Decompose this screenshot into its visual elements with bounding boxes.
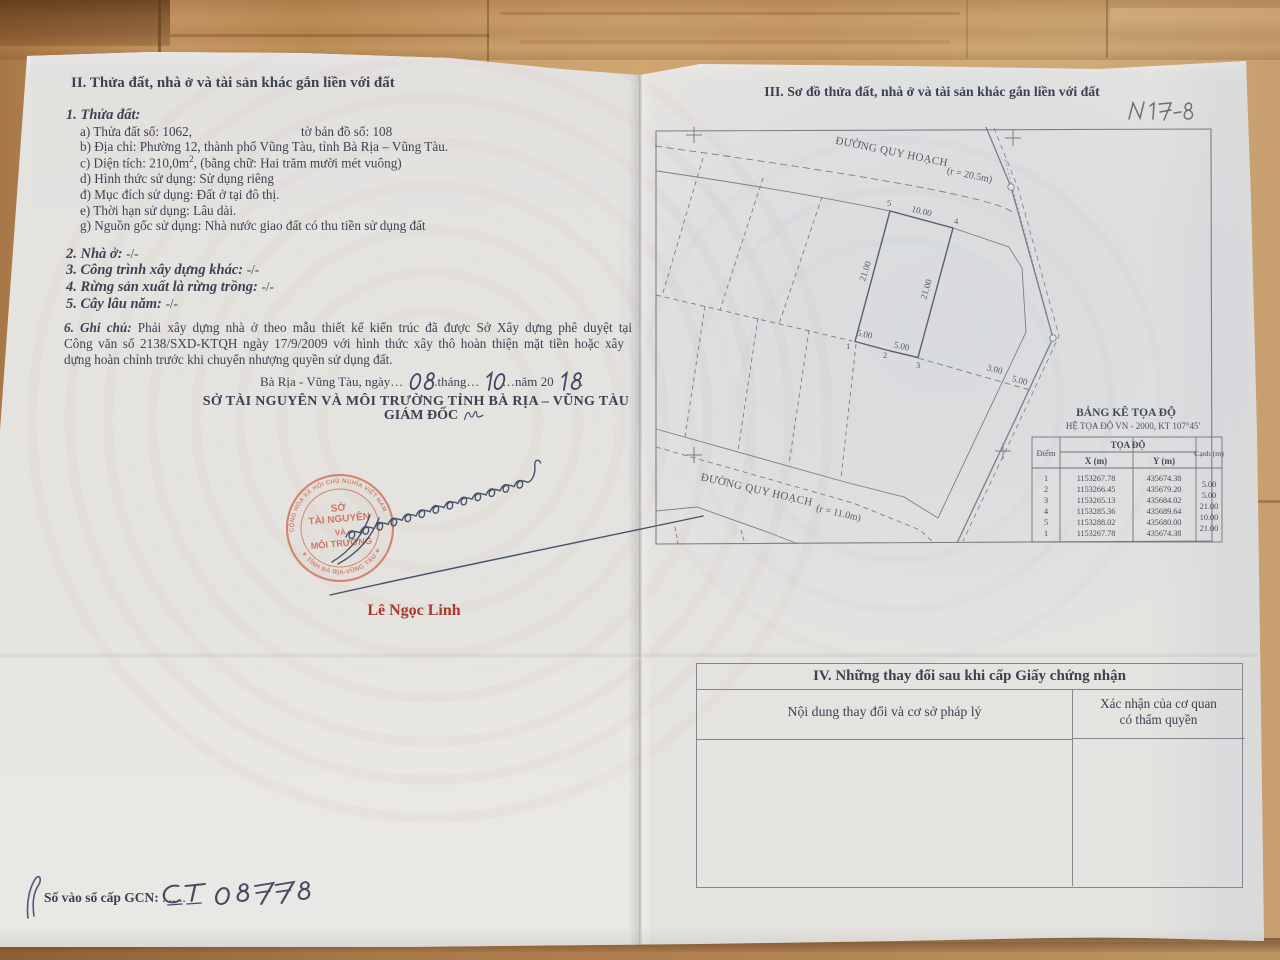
- svg-text:(r = 11.0m): (r = 11.0m): [815, 503, 862, 524]
- svg-text:435680.00: 435680.00: [1147, 518, 1182, 527]
- svg-text:2: 2: [883, 350, 887, 360]
- svg-text:1153267.78: 1153267.78: [1077, 474, 1116, 483]
- svg-text:3: 3: [1044, 496, 1048, 505]
- svg-text:435684.02: 435684.02: [1147, 496, 1182, 505]
- svg-text:ĐƯỜNG QUY HOẠCH: ĐƯỜNG QUY HOẠCH: [700, 471, 814, 508]
- svg-text:21.00: 21.00: [1200, 502, 1218, 511]
- svg-text:Cạnh (m): Cạnh (m): [1194, 449, 1224, 458]
- svg-text:21.00: 21.00: [1200, 524, 1218, 533]
- svg-text:1: 1: [1044, 474, 1048, 483]
- svg-text:4: 4: [954, 216, 959, 226]
- svg-text:Y (m): Y (m): [1153, 456, 1175, 466]
- svg-text:5.00: 5.00: [893, 339, 911, 352]
- svg-text:5.00: 5.00: [1011, 373, 1029, 387]
- svg-text:1: 1: [846, 341, 850, 351]
- svg-text:21.00: 21.00: [918, 278, 933, 301]
- svg-text:3: 3: [916, 360, 920, 370]
- svg-text:BẢNG KÊ TỌA ĐỘ: BẢNG KÊ TỌA ĐỘ: [1076, 405, 1176, 419]
- svg-text:1153267.78: 1153267.78: [1077, 529, 1116, 538]
- svg-text:1153285.36: 1153285.36: [1077, 507, 1116, 516]
- svg-text:1153266.45: 1153266.45: [1077, 485, 1116, 494]
- svg-text:X (m): X (m): [1085, 456, 1107, 466]
- svg-text:1153265.13: 1153265.13: [1077, 496, 1116, 505]
- svg-text:VÀ: VÀ: [334, 527, 346, 537]
- svg-text:5.00: 5.00: [1202, 480, 1216, 489]
- svg-text:4: 4: [1044, 507, 1048, 516]
- svg-text:(r = 20.5m): (r = 20.5m): [946, 166, 993, 186]
- svg-text:1: 1: [1044, 529, 1048, 538]
- svg-text:5.00: 5.00: [856, 327, 874, 340]
- svg-text:5: 5: [887, 198, 891, 208]
- svg-text:ĐƯỜNG QUY HOẠCH: ĐƯỜNG QUY HOẠCH: [834, 135, 948, 170]
- svg-text:10.00: 10.00: [1200, 513, 1218, 522]
- svg-text:5: 5: [1044, 518, 1048, 527]
- svg-text:21.00: 21.00: [857, 259, 873, 282]
- svg-text:435674.38: 435674.38: [1147, 529, 1182, 538]
- svg-text:435689.64: 435689.64: [1147, 507, 1182, 516]
- svg-text:10.00: 10.00: [911, 204, 934, 219]
- svg-text:3.00: 3.00: [986, 362, 1004, 376]
- svg-text:5.00: 5.00: [1202, 491, 1216, 500]
- svg-text:Điểm: Điểm: [1037, 448, 1056, 458]
- svg-text:2: 2: [1044, 485, 1048, 494]
- svg-text:435674.38: 435674.38: [1147, 474, 1182, 483]
- svg-text:HỆ TỌA ĐỘ VN - 2000, KT 107°45: HỆ TỌA ĐỘ VN - 2000, KT 107°45': [1066, 421, 1201, 431]
- svg-text:435679.20: 435679.20: [1147, 485, 1182, 494]
- svg-text:TỌA ĐỘ: TỌA ĐỘ: [1111, 440, 1146, 450]
- svg-text:1153288.02: 1153288.02: [1077, 518, 1116, 527]
